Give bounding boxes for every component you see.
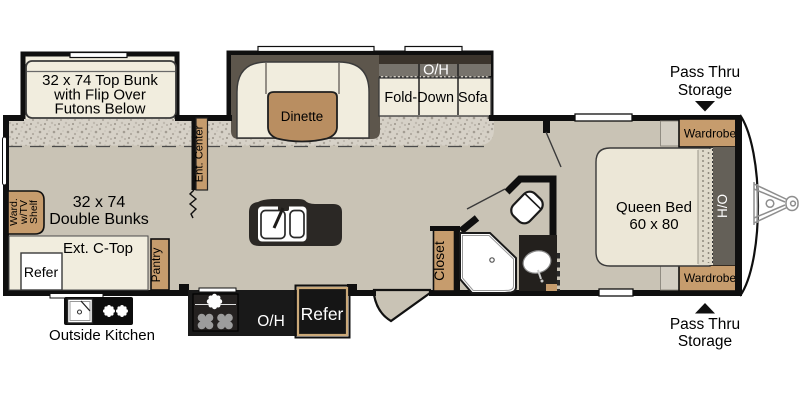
svg-text:Shelf: Shelf — [28, 200, 40, 224]
svg-text:Fold-Down Sofa: Fold-Down Sofa — [384, 90, 487, 106]
svg-text:Refer: Refer — [24, 264, 59, 280]
svg-text:Pass Thru: Pass Thru — [670, 316, 740, 333]
svg-text:Storage: Storage — [678, 333, 732, 350]
svg-text:O/H: O/H — [423, 63, 449, 79]
svg-text:Wardrobe: Wardrobe — [684, 127, 737, 141]
svg-text:O/H: O/H — [257, 313, 285, 330]
svg-text:32 x 74: 32 x 74 — [73, 194, 126, 211]
svg-text:H/O: H/O — [715, 194, 730, 218]
svg-text:Queen Bed: Queen Bed — [616, 199, 692, 216]
svg-text:Pantry: Pantry — [149, 248, 163, 283]
svg-text:Refer: Refer — [301, 304, 344, 324]
svg-text:Dinette: Dinette — [281, 109, 323, 124]
svg-text:60 x 80: 60 x 80 — [629, 216, 678, 233]
svg-text:Pass Thru: Pass Thru — [670, 64, 740, 81]
svg-text:Futons Below: Futons Below — [55, 101, 146, 118]
svg-text:Ext. C-Top: Ext. C-Top — [63, 240, 133, 257]
svg-text:Double Bunks: Double Bunks — [49, 211, 149, 228]
svg-text:Ent. Center: Ent. Center — [194, 125, 206, 182]
svg-text:Wardrobe: Wardrobe — [684, 271, 737, 285]
svg-text:Outside Kitchen: Outside Kitchen — [49, 327, 155, 344]
svg-text:Storage: Storage — [678, 82, 732, 99]
svg-text:Closet: Closet — [431, 241, 447, 281]
